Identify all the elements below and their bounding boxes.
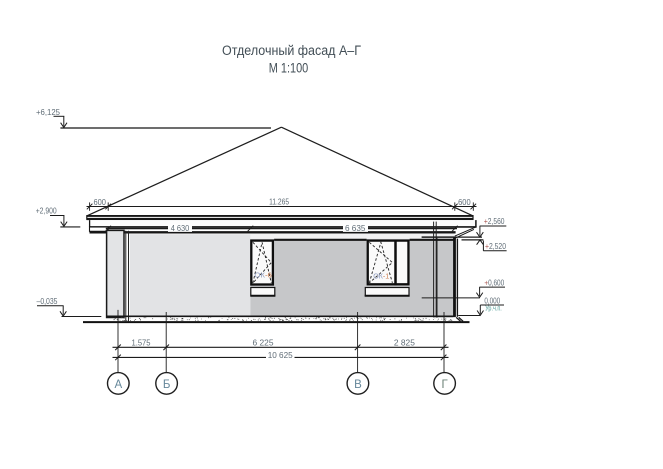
svg-text:А: А bbox=[114, 379, 122, 391]
svg-text:1.575: 1.575 bbox=[132, 338, 151, 348]
svg-text:–0,035: –0,035 bbox=[37, 296, 58, 306]
svg-text:Отделочный фасад А–Г: Отделочный фасад А–Г bbox=[222, 43, 362, 58]
svg-text:+0,600: +0,600 bbox=[484, 278, 504, 288]
svg-text:+2,900: +2,900 bbox=[36, 206, 57, 216]
svg-text:6 635: 6 635 bbox=[345, 223, 366, 233]
svg-text:6 225: 6 225 bbox=[253, 338, 274, 348]
svg-text:Г: Г bbox=[441, 379, 448, 391]
svg-text:+2,560: +2,560 bbox=[484, 216, 505, 226]
svg-text:ОК-6: ОК-6 bbox=[254, 271, 272, 280]
svg-text:600: 600 bbox=[458, 197, 471, 207]
svg-text:+6,125: +6,125 bbox=[36, 107, 60, 117]
svg-text:10 625: 10 625 bbox=[268, 350, 293, 360]
svg-text:600: 600 bbox=[93, 197, 106, 207]
svg-text:ОК-1: ОК-1 bbox=[373, 271, 389, 280]
svg-text:+2,520: +2,520 bbox=[485, 241, 506, 251]
svg-text:4 630: 4 630 bbox=[171, 223, 190, 233]
svg-text:Б: Б bbox=[163, 379, 171, 391]
svg-text:В: В bbox=[354, 379, 362, 391]
svg-text:2 825: 2 825 bbox=[394, 338, 415, 348]
svg-text:11.265: 11.265 bbox=[269, 196, 289, 206]
svg-text:М 1:100: М 1:100 bbox=[269, 61, 309, 76]
